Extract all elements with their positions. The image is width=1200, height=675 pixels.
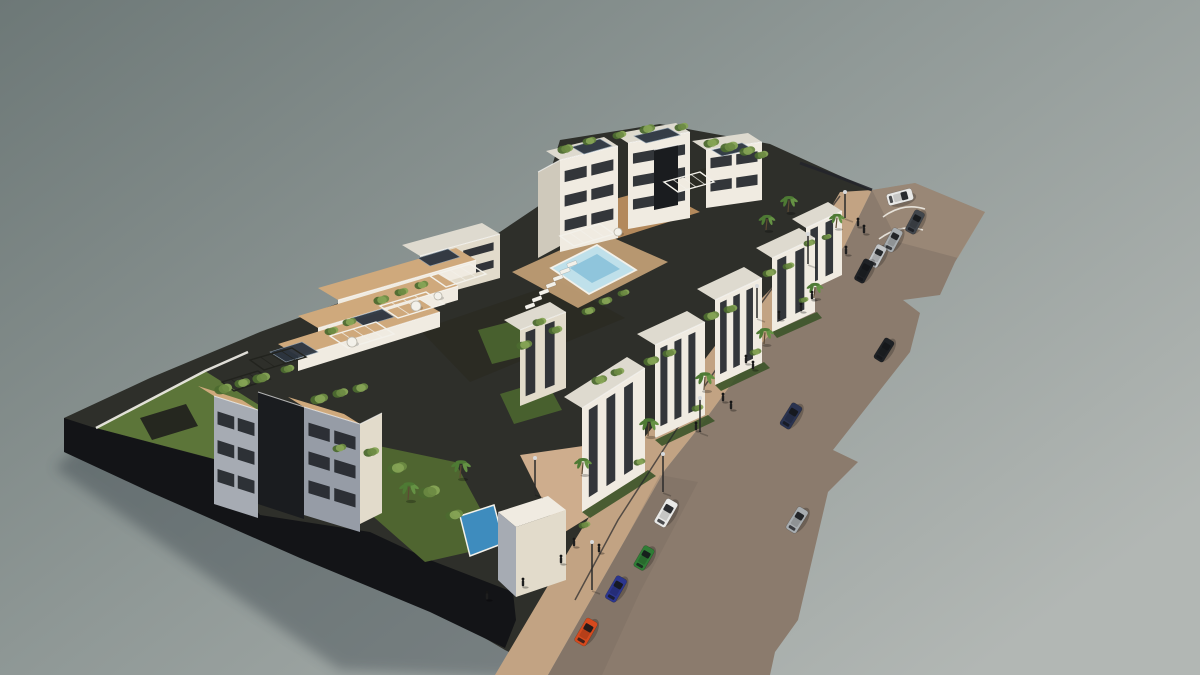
pedestrian-head (730, 401, 733, 404)
facade (654, 145, 678, 210)
shrub-blob (257, 374, 268, 383)
pedestrian-head (752, 361, 755, 364)
window (826, 219, 834, 276)
pedestrian-shadow (745, 363, 751, 365)
pedestrian-head (800, 303, 803, 306)
palm-frond (762, 215, 771, 218)
pedestrian-body (811, 293, 813, 300)
pedestrian-shadow (863, 233, 869, 235)
parasol-canopy (411, 301, 421, 311)
palm-shadow (787, 212, 796, 215)
parasol-canopy (347, 337, 357, 347)
shrub-blob (586, 138, 594, 145)
window (526, 329, 536, 397)
shrub-blob (725, 143, 736, 152)
window (688, 332, 695, 413)
shrub-blob (752, 349, 759, 355)
shrub-blob (552, 327, 560, 334)
shrub-blob (377, 296, 387, 304)
pedestrian-body (863, 227, 865, 234)
shrub-blob (785, 263, 792, 269)
lamp-head (698, 396, 702, 400)
entrance-core (258, 392, 304, 519)
palm-shadow (406, 500, 416, 503)
lamp-head (755, 284, 759, 288)
shrub-blob (678, 124, 686, 131)
shrub-blob (284, 366, 292, 373)
shrub-blob (346, 319, 354, 326)
pedestrian-shadow (857, 226, 863, 228)
parasol-canopy (614, 228, 622, 236)
pedestrian-body (778, 313, 780, 320)
palm-frond (833, 214, 842, 217)
palm-frond (578, 458, 588, 461)
lamp-head (590, 540, 594, 544)
pedestrian-head (778, 311, 781, 314)
palm-shadow (765, 230, 774, 233)
lamp-head (661, 452, 665, 456)
pedestrian-head (695, 422, 698, 425)
palm-shadow (646, 436, 656, 439)
pedestrian-head (745, 355, 748, 358)
shrub-blob (766, 270, 774, 277)
pedestrian-body (800, 305, 802, 312)
facade (258, 392, 304, 519)
pedestrian-shadow (811, 299, 817, 301)
window (733, 293, 740, 367)
shrub-blob (315, 395, 326, 404)
shrub-blob (367, 448, 377, 456)
pedestrian-head (722, 393, 725, 396)
shrub-blob (392, 463, 404, 473)
pedestrian-shadow (486, 599, 492, 601)
pedestrian-body (522, 580, 524, 587)
shrub-blob (595, 376, 605, 384)
palm-frond (810, 283, 819, 286)
architectural-render (0, 0, 1200, 675)
parasol-canopy (434, 292, 442, 300)
pedestrian-shadow (752, 369, 758, 371)
pedestrian-shadow (573, 546, 579, 548)
pedestrian-body (695, 424, 697, 431)
shrub-blob (647, 357, 657, 365)
pedestrian-body (722, 395, 724, 402)
tower-a-side (538, 160, 560, 258)
pedestrian-body (573, 540, 575, 547)
pedestrian-body (598, 546, 600, 553)
palm-shadow (763, 344, 772, 347)
shrub-blob (824, 235, 830, 240)
pedestrian-shadow (522, 586, 528, 588)
pedestrian-head (845, 246, 848, 249)
render-viewport (0, 0, 1200, 675)
shrub-blob (801, 298, 807, 303)
pedestrian-shadow (722, 401, 728, 403)
shrub-blob (336, 389, 346, 397)
palm-shadow (458, 478, 468, 481)
shrub-blob (398, 289, 406, 296)
shrub-blob (620, 290, 627, 296)
pedestrian-body (560, 557, 562, 564)
pedestrian-head (863, 225, 866, 228)
palm-shadow (835, 228, 843, 231)
pedestrian-shadow (800, 311, 806, 313)
palm-frond (784, 196, 794, 199)
shrub-blob (616, 132, 624, 139)
shrub-blob (536, 319, 544, 326)
window (606, 393, 615, 486)
pedestrian-head (598, 544, 601, 547)
lamp-head (843, 190, 847, 194)
shrub-blob (450, 511, 461, 520)
apartment-left-2-side (360, 413, 382, 524)
palm-frond (644, 418, 655, 422)
palm-frond (760, 328, 770, 331)
pedestrian-head (486, 591, 489, 594)
shrub-blob (418, 282, 426, 289)
shrub-blob (520, 341, 530, 349)
pedestrian-body (730, 403, 732, 410)
shrub-blob (743, 147, 753, 155)
facade (538, 160, 560, 258)
shrub-blob (336, 445, 344, 452)
shrub-blob (602, 298, 610, 305)
shrub-blob (328, 328, 336, 335)
pedestrian-head (811, 291, 814, 294)
pedestrian-head (560, 555, 563, 558)
palm-shadow (702, 390, 712, 393)
shrub-blob (238, 379, 248, 387)
shrub-blob (423, 487, 436, 498)
shrub-blob (561, 145, 571, 153)
palm-shadow (581, 474, 590, 477)
pedestrian-body (857, 220, 859, 227)
pedestrian-body (752, 363, 754, 370)
pedestrian-body (845, 248, 847, 255)
pedestrian-shadow (695, 430, 701, 432)
pedestrian-shadow (598, 552, 604, 554)
shrub-blob (643, 125, 653, 133)
shrub-blob (614, 369, 622, 376)
pedestrian-head (522, 578, 525, 581)
shrub-blob (666, 350, 674, 357)
window (589, 404, 598, 497)
shrub-blob (356, 384, 366, 392)
palm-frond (404, 482, 415, 486)
facade (360, 413, 382, 524)
tower-b-core (654, 145, 678, 210)
lamp-head (806, 232, 810, 236)
pedestrian-head (573, 538, 576, 541)
palm-frond (456, 460, 467, 464)
pedestrian-body (486, 593, 488, 600)
palm-frond (700, 372, 711, 376)
shrub-blob (585, 308, 593, 315)
window (624, 382, 633, 475)
shrub-blob (636, 459, 643, 465)
pedestrian-body (745, 357, 747, 364)
pedestrian-shadow (560, 563, 566, 565)
shrub-blob (581, 522, 588, 528)
lamp-head (533, 456, 537, 460)
shrub-blob (727, 306, 735, 313)
pedestrian-shadow (778, 319, 784, 321)
pedestrian-shadow (730, 409, 736, 411)
shrub-blob (707, 139, 717, 147)
pedestrian-head (857, 218, 860, 221)
shrub-blob (707, 312, 717, 320)
pedestrian-shadow (845, 254, 851, 256)
shrub-blob (219, 385, 230, 394)
shrub-blob (758, 152, 766, 159)
